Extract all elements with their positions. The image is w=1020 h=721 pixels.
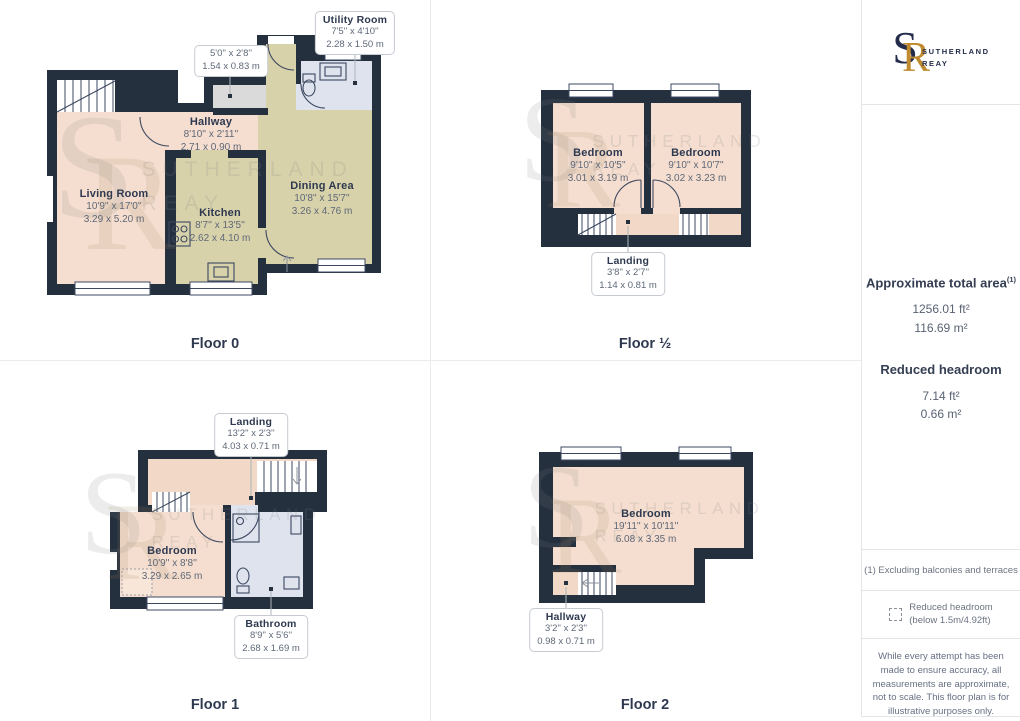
reduced-headroom-ft: 7.14 ft² [862,387,1020,406]
floorplan-page: S R SUTHERLANDREAY Utility Room 7'5'' x … [0,0,1020,721]
callout-closet: 5'0'' x 2'8'' 1.54 x 0.83 m [194,45,268,77]
callout-landing-f1: Landing 13'2'' x 2'3'' 4.03 x 0.71 m [214,413,288,457]
floor-half-label-dot [626,220,630,224]
floor-label-2: Floor 2 [621,697,669,713]
floor-label-1: Floor 1 [191,697,239,713]
floor-half-quadrant: S R SUTHERLANDREAY Bedroom 9'10'' x 10'5… [431,0,861,360]
floor-label-half: Floor ½ [619,336,671,352]
label-hallway: Hallway 8'10'' x 2'11'' 2.71 x 0.90 m [181,116,242,154]
area-summary: Approximate total area(1) 1256.01 ft² 11… [862,105,1020,550]
footnote: (1) Excluding balconies and terraces [862,550,1020,591]
sutherland-reay-logo: S R SUTHERLAND REAY [892,25,989,79]
total-area-m: 116.69 m² [862,319,1020,338]
floor0-quadrant: S R SUTHERLANDREAY Utility Room 7'5'' x … [0,0,430,360]
disclaimer-text: While every attempt has been made to ens… [872,650,1010,719]
callout-utility-room: Utility Room 7'5'' x 4'10'' 2.28 x 1.50 … [315,11,395,55]
footnote-marker: (1) [1007,275,1016,284]
label-living-room: Living Room 10'9'' x 17'0'' 3.29 x 5.20 … [80,188,149,226]
reduced-headroom-title: Reduced headroom [862,362,1020,377]
label-kitchen: Kitchen 8'7'' x 13'5'' 2.62 x 4.10 m [190,207,251,245]
label-bedroom-right: Bedroom 9'10'' x 10'7'' 3.02 x 3.23 m [666,147,727,185]
floor2-label-dot [564,581,568,585]
logo-wordmark: SUTHERLAND REAY [922,47,990,68]
headroom-legend: Reduced headroom (below 1.5m/4.92ft) [862,591,1020,639]
floor2-quadrant: S R SUTHERLANDREAY Bedroom 19'11'' x 10'… [431,361,861,721]
disclaimer-panel: While every attempt has been made to ens… [862,639,1020,716]
label-bedroom-f1: Bedroom 10'9'' x 8'8'' 3.29 x 2.65 m [142,545,203,583]
callout-bathroom: Bathroom 8'9'' x 5'6'' 2.68 x 1.69 m [234,615,308,659]
reduced-headroom-m: 0.66 m² [862,405,1020,424]
label-bedroom-f2: Bedroom 19'11'' x 10'11'' 6.08 x 3.35 m [613,508,678,546]
floor1-quadrant: S R SUTHERLANDREAY Landing 13'2'' x 2'3'… [0,361,430,721]
floor-label-0: Floor 0 [191,336,239,352]
callout-hallway-f2: Hallway 3'2'' x 2'3'' 0.98 x 0.71 m [529,608,603,652]
callout-landing: Landing 3'8'' x 2'7'' 1.14 x 0.81 m [591,252,665,296]
sidebar: S R SUTHERLAND REAY Approximate total ar… [861,0,1020,717]
label-dining-area: Dining Area 10'8'' x 15'7'' 3.26 x 4.76 … [290,180,354,218]
logo-panel: S R SUTHERLAND REAY [862,0,1020,105]
total-area-title: Approximate total area(1) [862,275,1020,290]
total-area-ft: 1256.01 ft² [862,300,1020,319]
floor-half-drawing [431,0,861,360]
label-bedroom-left: Bedroom 9'10'' x 10'5'' 3.01 x 3.19 m [568,147,629,185]
legend-line2: (below 1.5m/4.92ft) [909,615,990,626]
reduced-headroom-icon [889,608,902,621]
legend-line1: Reduced headroom [909,602,992,613]
